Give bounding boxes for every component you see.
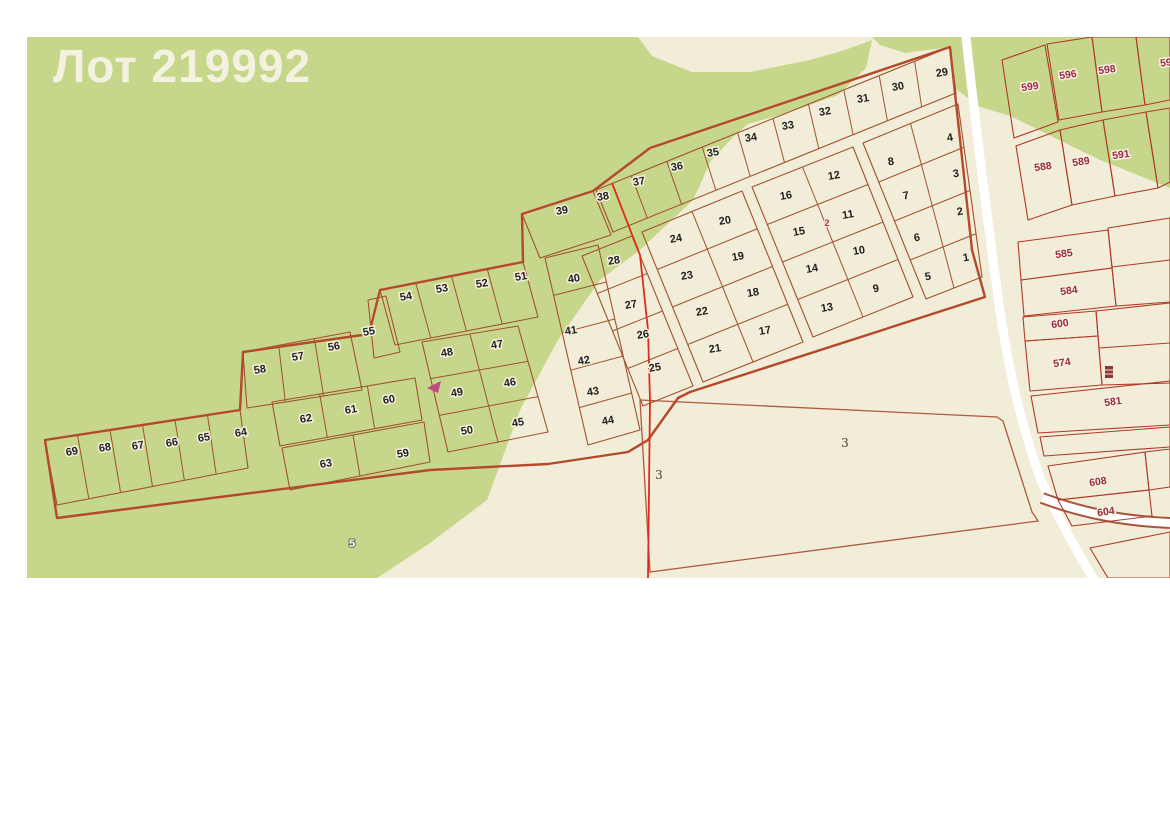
parcel-label-46: 46 [503, 376, 517, 390]
parcel-label-41: 41 [564, 324, 578, 338]
area-label-3-2: 3 [655, 468, 663, 482]
parcel-label-61: 61 [344, 403, 358, 417]
parcel-label-574: 574 [1052, 356, 1071, 370]
parcel-label-42: 42 [577, 354, 591, 368]
parcel-label-33: 33 [781, 119, 795, 133]
parcel-label-599: 599 [1020, 80, 1039, 94]
parcel-label-43: 43 [586, 385, 600, 399]
parcel-label-59: 59 [1159, 56, 1170, 70]
area-label-3-1: 3 [841, 436, 849, 450]
parcel-label-29: 29 [935, 66, 949, 80]
building-icon [1105, 366, 1113, 378]
parcel-label-35: 35 [706, 146, 720, 160]
parcel-label-57: 57 [291, 350, 305, 364]
area-badge-5: 5 [349, 538, 355, 550]
parcel-label-37: 37 [632, 175, 646, 189]
parcel-label-66: 66 [165, 436, 179, 450]
parcel-label-47: 47 [490, 338, 504, 352]
parcel-label-28: 28 [607, 254, 621, 268]
parcel-label-69: 69 [65, 445, 79, 459]
parcel-label-585: 585 [1054, 247, 1073, 261]
parcel-label-17: 17 [758, 324, 772, 338]
parcel-label-25: 25 [648, 361, 662, 375]
parcel-label-598: 598 [1097, 63, 1116, 77]
parcel-label-596: 596 [1058, 68, 1077, 82]
parcel-label-26: 26 [636, 328, 650, 342]
parcel-label-32: 32 [818, 105, 832, 119]
parcel-label-12: 12 [827, 169, 841, 183]
parcel-label-59: 59 [396, 447, 410, 461]
parcel-label-22: 22 [695, 305, 709, 319]
parcel-label-588: 588 [1033, 160, 1052, 174]
parcel-label-45: 45 [511, 416, 525, 430]
parcel-label-67: 67 [131, 439, 145, 453]
parcel-label-62: 62 [299, 412, 313, 426]
parcel-label-16: 16 [779, 189, 793, 203]
parcel-label-13: 13 [820, 301, 834, 315]
parcel-label-55: 55 [362, 325, 376, 339]
parcel-label-30: 30 [891, 80, 905, 94]
parcel-label-63: 63 [319, 457, 333, 471]
parcel-label-18: 18 [746, 286, 760, 300]
parcel-label-56: 56 [327, 340, 341, 354]
parcel-label-58: 58 [253, 363, 267, 377]
parcel-label-40: 40 [567, 272, 581, 286]
parcel-label-48: 48 [440, 346, 454, 360]
parcel-label-38: 38 [596, 190, 610, 204]
parcel-label-11: 11 [841, 208, 855, 222]
parcel-label-36: 36 [670, 160, 684, 174]
parcel-label-23: 23 [680, 269, 694, 283]
parcel-label-52: 52 [475, 277, 489, 291]
parcel-label-589: 589 [1071, 155, 1090, 169]
parcel-label-21: 21 [708, 342, 722, 356]
parcel-label-31: 31 [856, 92, 870, 106]
district-label-2: 2 [824, 218, 829, 228]
cadastral-map[interactable]: 1234567891011121314151617181920212223242… [27, 37, 1170, 578]
parcel-label-591: 591 [1111, 148, 1130, 162]
parcel-label-608: 608 [1088, 475, 1107, 489]
parcel-label-20: 20 [718, 214, 732, 228]
parcel-label-50: 50 [460, 424, 474, 438]
parcel-label-68: 68 [98, 441, 112, 455]
parcel-label-10: 10 [852, 244, 866, 258]
parcel-label-581: 581 [1103, 395, 1122, 409]
parcel-label-39: 39 [555, 204, 569, 218]
parcel-label-584: 584 [1059, 284, 1078, 298]
map-canvas: 1234567891011121314151617181920212223242… [27, 37, 1170, 578]
parcel-label-19: 19 [731, 250, 745, 264]
parcel-label-49: 49 [450, 386, 464, 400]
parcel-label-51: 51 [514, 270, 528, 284]
parcel-label-604: 604 [1096, 505, 1115, 519]
parcel-label-60: 60 [382, 393, 396, 407]
parcel-label-65: 65 [197, 431, 211, 445]
parcel-label-15: 15 [792, 225, 806, 239]
parcel-label-53: 53 [435, 282, 449, 296]
parcel-label-600: 600 [1050, 317, 1069, 331]
parcel-label-27: 27 [624, 298, 638, 312]
lot-title: Лот 219992 [53, 39, 311, 93]
